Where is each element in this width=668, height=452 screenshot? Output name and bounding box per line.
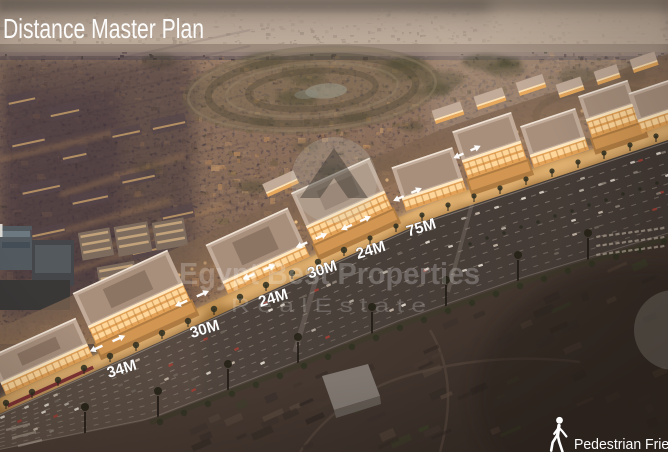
svg-text:Distance Master Plan: Distance Master Plan bbox=[3, 13, 204, 44]
svg-text:Pedestrian Friendly: Pedestrian Friendly bbox=[574, 436, 668, 452]
